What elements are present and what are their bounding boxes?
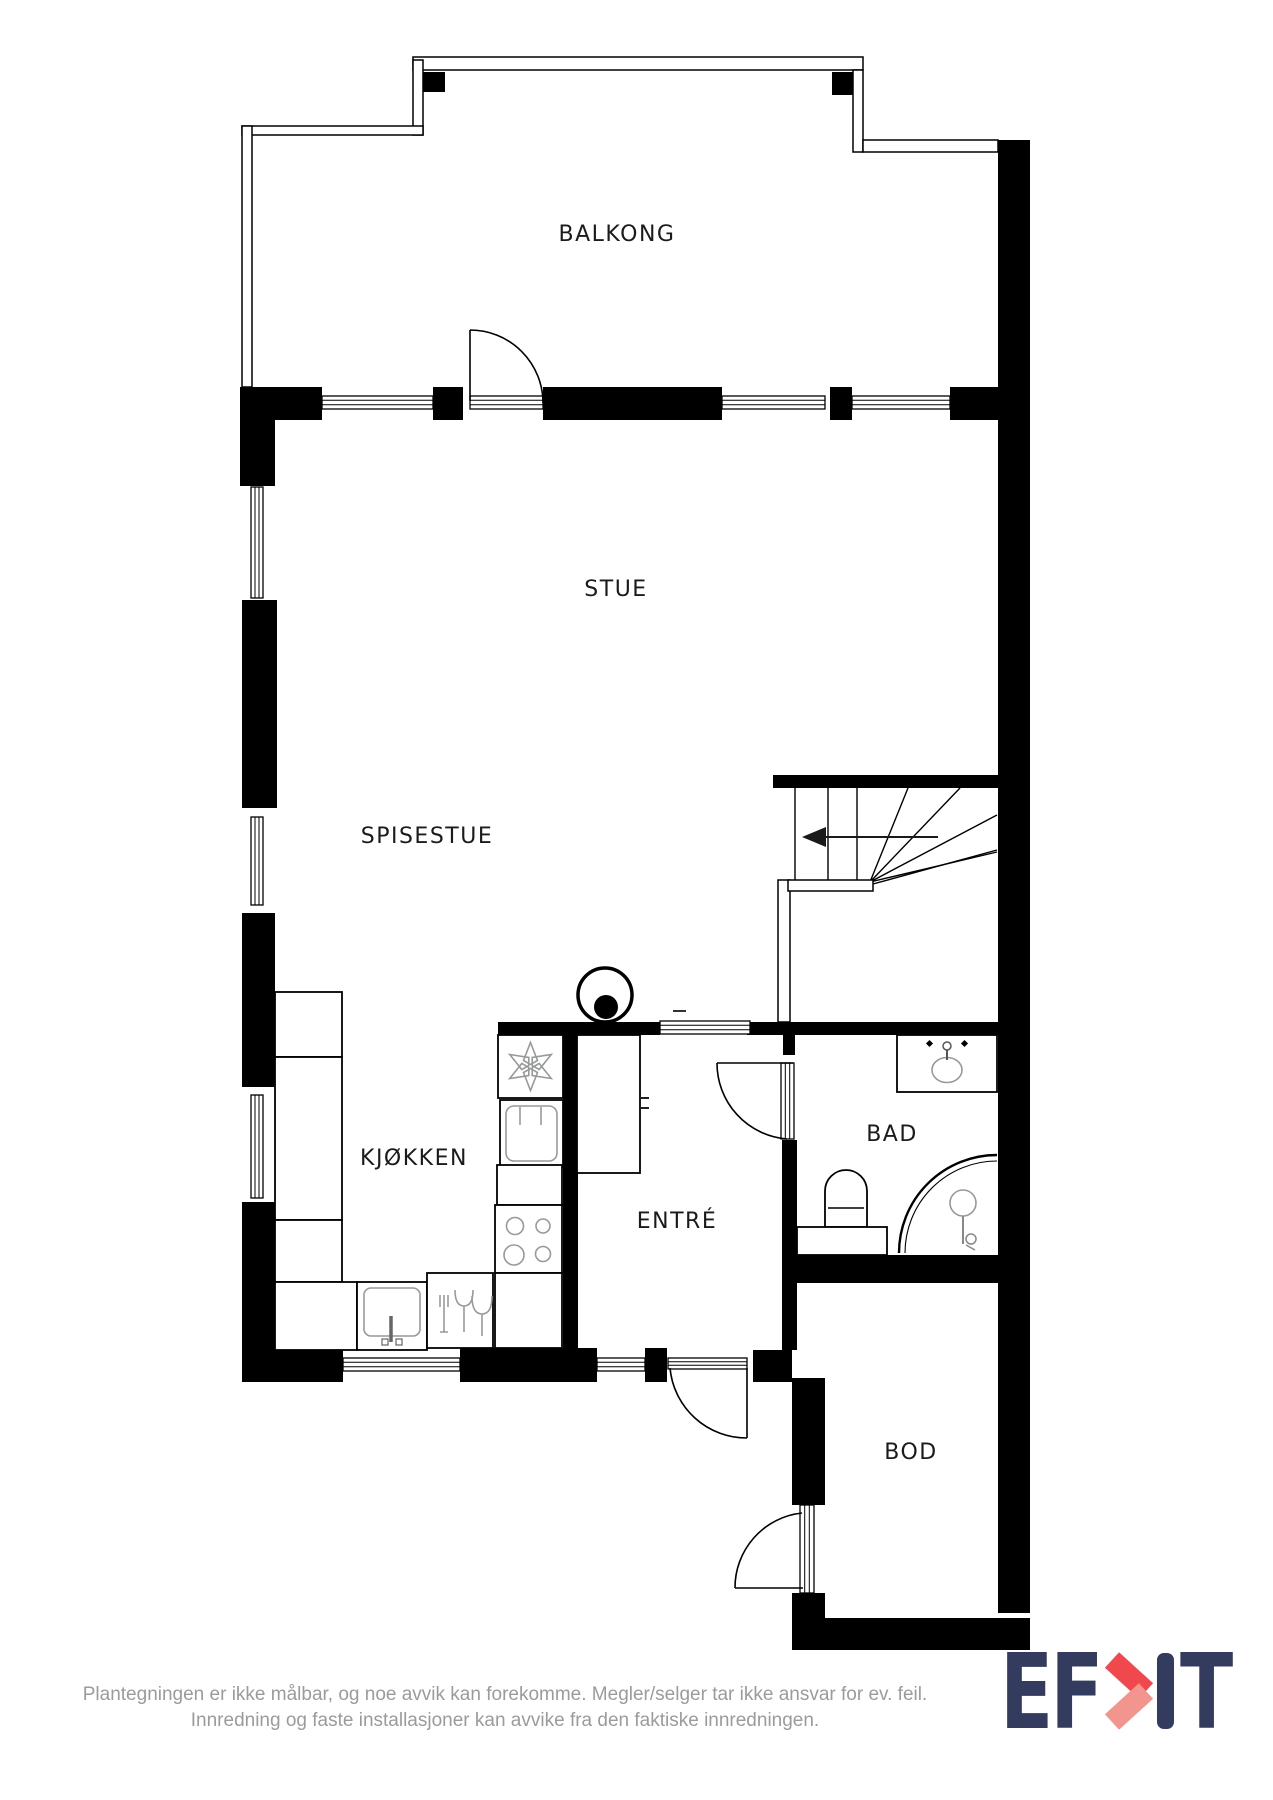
room-label-spisestue: SPISESTUE [361,824,494,849]
understair-wall [778,880,790,1022]
doors [470,330,803,1588]
tall-cabinet [577,1035,649,1173]
toilet [797,1170,887,1255]
bod-door [735,1513,803,1588]
bath-door-frame [781,1063,794,1139]
room-label-kjokken: KJØKKEN [360,1146,468,1171]
room-label-bod: BOD [884,1440,937,1465]
bathroom-sink [897,1035,997,1092]
room-label-bad: BAD [866,1122,918,1147]
oven [500,1100,563,1167]
logo-prefix: EF [1000,1652,1101,1737]
kitchen-cabinet [275,1220,342,1282]
window [251,487,263,598]
dishwasher [427,1273,493,1348]
water-heater [578,968,632,1022]
stair-rail [788,880,873,891]
balcony-door [470,330,543,403]
kitchen-corner-cabinet [275,1282,357,1350]
balcony-door-sill [470,396,543,409]
kitchen-sink [357,1282,427,1350]
disclaimer-line-2: Innredning og faste installasjoner kan a… [40,1708,970,1734]
room-label-balkong: BALKONG [559,222,676,247]
logo-suffix: T [1180,1652,1233,1737]
stairs [778,788,997,1022]
efkt-logo: EF T [1000,1652,1260,1741]
room-label-stue: STUE [584,577,647,602]
window [251,817,263,905]
kitchen-counter [275,1057,342,1220]
disclaimer-line-1: Plantegningen er ikke målbar, og noe avv… [40,1682,970,1708]
cooktop [495,1205,562,1273]
interior-window [660,1021,750,1034]
kitchen-cabinet [495,1273,562,1348]
stairs-direction-arrow-icon [802,827,826,847]
logo-chevron-k-icon [1112,1653,1174,1729]
window [722,396,825,409]
window [597,1358,645,1371]
structural-walls [240,72,1030,1650]
entry-door [670,1368,747,1438]
entry-door-sill [668,1358,747,1369]
kitchen-cabinet [275,992,342,1057]
shower [899,1155,997,1253]
kitchen-counter [497,1165,562,1205]
floorplan-drawing: .blk{fill:#000;stroke:none} .thin{fill:#… [0,0,1273,1800]
balcony-post [832,72,855,95]
disclaimer-text: Plantegningen er ikke målbar, og noe avv… [40,1682,970,1734]
balcony-post [423,72,445,92]
bod-door-frame [800,1505,814,1593]
window [322,396,433,409]
window [251,1095,263,1198]
window [343,1358,460,1371]
window [852,396,950,409]
cabinet-handle [640,1098,649,1108]
ventilation-fan [498,1035,563,1098]
floorplan-page: .blk{fill:#000;stroke:none} .thin{fill:#… [0,0,1273,1800]
room-label-entre: ENTRÉ [637,1208,717,1234]
